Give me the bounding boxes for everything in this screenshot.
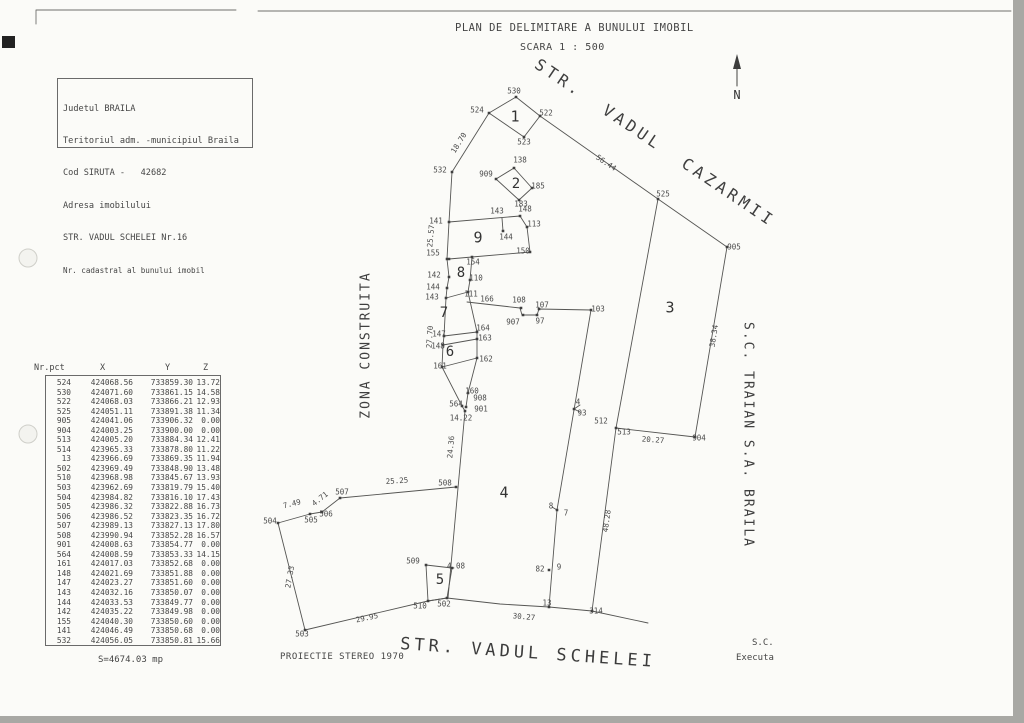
point-label: 908 [473, 394, 487, 402]
parcel-number: 8 [457, 266, 465, 280]
table-row: 532424056.05733850.8115.66 [46, 636, 220, 646]
area-label: S=4674.03 mp [98, 655, 163, 665]
point-label: 111 [464, 290, 478, 298]
point-label: 82 [535, 565, 544, 573]
point-label: 314 [589, 607, 603, 615]
col-header-z: Z [203, 363, 208, 373]
executa-label: Executa [736, 653, 774, 663]
point-label: 503 [295, 630, 309, 638]
table-cell: 733869.35 [133, 454, 193, 464]
table-cell: 532 [46, 636, 71, 646]
table-cell: 424035.22 [71, 607, 133, 617]
scan-mark [2, 36, 15, 48]
property-info-box: Judetul BRAILA Teritoriul adm. -municipi… [57, 78, 253, 148]
point-label: 509 [406, 557, 420, 565]
table-cell: 0.00 [193, 540, 220, 550]
table-cell: 733827.13 [133, 521, 193, 531]
table-row: 144424033.53733849.770.00 [46, 598, 220, 608]
table-row: 530424071.60733861.1514.58 [46, 388, 220, 398]
table-cell: 423968.98 [71, 473, 133, 483]
point-label: 148 [431, 342, 445, 350]
table-row: 148424021.69733851.880.00 [46, 569, 220, 579]
info-siruta: Cod SIRUTA - 42682 [63, 168, 252, 179]
table-cell: 905 [46, 416, 71, 426]
table-cell: 142 [46, 607, 71, 617]
table-row: 505423986.32733822.8816.73 [46, 502, 220, 512]
table-cell: 424051.11 [71, 407, 133, 417]
info-address-label: Adresa imobilului [63, 201, 252, 212]
table-cell: 424046.49 [71, 626, 133, 636]
table-cell: 16.57 [193, 531, 220, 541]
table-row: 901424008.63733854.770.00 [46, 540, 220, 550]
info-street: STR. VADUL SCHELEI Nr.16 [63, 233, 252, 244]
parcel-number: 7 [440, 306, 448, 320]
table-cell: 733884.34 [133, 435, 193, 445]
col-header-x: X [100, 363, 105, 373]
table-row: 514423965.33733878.8011.22 [46, 445, 220, 455]
point-label: 164 [476, 324, 490, 332]
info-territory: Teritoriul adm. -municipiul Braila [63, 136, 252, 147]
point-label: 14.22 [450, 414, 473, 422]
table-cell: 155 [46, 617, 71, 627]
point-label: 144 [426, 283, 440, 291]
point-label: 24.36 [446, 435, 455, 458]
table-cell: 733891.38 [133, 407, 193, 417]
table-cell: 530 [46, 388, 71, 398]
table-cell: 502 [46, 464, 71, 474]
point-label: 512 [594, 417, 608, 425]
point-label: 530 [507, 87, 521, 95]
table-cell: 733850.07 [133, 588, 193, 598]
table-cell: 0.00 [193, 588, 220, 598]
table-cell: 424021.69 [71, 569, 133, 579]
table-cell: 733822.88 [133, 502, 193, 512]
table-row: 155424040.30733850.600.00 [46, 617, 220, 627]
table-cell: 733852.68 [133, 559, 193, 569]
point-label: 532 [433, 166, 447, 174]
table-row: 506423986.52733823.3516.72 [46, 512, 220, 522]
table-cell: 424023.27 [71, 578, 133, 588]
parcel-number: 5 [436, 573, 444, 587]
table-cell: 733849.77 [133, 598, 193, 608]
table-row: 524424068.56733859.3013.72 [46, 378, 220, 388]
table-cell: 423986.52 [71, 512, 133, 522]
table-cell: 0.00 [193, 617, 220, 627]
point-label: 141 [429, 217, 443, 225]
table-cell: 424017.03 [71, 559, 133, 569]
point-label: 907 [506, 318, 520, 326]
point-label: 9 [557, 563, 562, 571]
parcel-number: 4 [499, 486, 508, 501]
table-cell: 733823.35 [133, 512, 193, 522]
table-cell: 424068.56 [71, 378, 133, 388]
scale-label: SCARA 1 : 500 [520, 42, 605, 53]
table-cell: 524 [46, 378, 71, 388]
table-cell: 503 [46, 483, 71, 493]
point-label: 4.08 [447, 562, 465, 570]
table-cell: 17.43 [193, 493, 220, 503]
table-cell: 424005.20 [71, 435, 133, 445]
point-label: 524 [470, 106, 484, 114]
point-label: 7 [564, 509, 569, 517]
projection-label: PROIECTIE STEREO 1970 [280, 652, 404, 662]
table-cell: 0.00 [193, 626, 220, 636]
point-label: 901 [474, 405, 488, 413]
point-label: 505 [304, 516, 318, 524]
point-label: 155 [426, 249, 440, 257]
point-label: 108 [512, 296, 526, 304]
table-cell: 17.80 [193, 521, 220, 531]
table-cell: 147 [46, 578, 71, 588]
table-cell: 148 [46, 569, 71, 579]
table-cell: 733859.30 [133, 378, 193, 388]
table-cell: 733850.81 [133, 636, 193, 646]
table-cell: 424003.25 [71, 426, 133, 436]
table-cell: 733845.67 [133, 473, 193, 483]
parcel-number: 9 [473, 231, 482, 246]
table-cell: 11.94 [193, 454, 220, 464]
point-label: 166 [480, 295, 494, 303]
table-cell: 733854.77 [133, 540, 193, 550]
point-label: 148 [518, 205, 532, 213]
point-label: 154 [466, 258, 480, 266]
point-label: 904 [692, 434, 706, 442]
table-cell: 733850.60 [133, 617, 193, 627]
point-label: 107 [535, 301, 549, 309]
point-label: 113 [527, 220, 541, 228]
table-cell: 13.72 [193, 378, 220, 388]
point-label: 143 [425, 293, 439, 301]
table-cell: 424071.60 [71, 388, 133, 398]
coordinate-table: 524424068.56733859.3013.72530424071.6073… [45, 375, 221, 646]
table-cell: 423965.33 [71, 445, 133, 455]
table-cell: 14.15 [193, 550, 220, 560]
point-label: 507 [335, 488, 349, 496]
point-label: 510 [413, 602, 427, 610]
page-title: PLAN DE DELIMITARE A BUNULUI IMOBIL [455, 22, 694, 34]
table-cell: 901 [46, 540, 71, 550]
table-cell: 733851.60 [133, 578, 193, 588]
point-label: 138 [513, 156, 527, 164]
point-label: 142 [427, 271, 441, 279]
table-cell: 0.00 [193, 569, 220, 579]
table-cell: 12.93 [193, 397, 220, 407]
col-header-y: Y [165, 363, 170, 373]
table-row: 525424051.11733891.3811.34 [46, 407, 220, 417]
table-cell: 424068.03 [71, 397, 133, 407]
point-label: 144 [499, 233, 513, 241]
table-cell: 424032.16 [71, 588, 133, 598]
table-row: 143424032.16733850.070.00 [46, 588, 220, 598]
table-cell: 144 [46, 598, 71, 608]
table-cell: 733861.15 [133, 388, 193, 398]
table-cell: 0.00 [193, 559, 220, 569]
table-cell: 161 [46, 559, 71, 569]
table-cell: 15.66 [193, 636, 220, 646]
point-label: 25.57 [426, 224, 435, 247]
table-cell: 733853.33 [133, 550, 193, 560]
point-label: 564 [449, 400, 463, 408]
table-cell: 0.00 [193, 578, 220, 588]
table-cell: 16.72 [193, 512, 220, 522]
col-header-nr: Nr.pct [34, 363, 65, 373]
street-label: S.C. TRAIAN S.A. BRAILA [742, 322, 755, 548]
point-label: 150 [516, 247, 530, 255]
table-row: 161424017.03733852.680.00 [46, 559, 220, 569]
table-cell: 733819.79 [133, 483, 193, 493]
table-cell: 424033.53 [71, 598, 133, 608]
table-cell: 510 [46, 473, 71, 483]
table-cell: 733851.88 [133, 569, 193, 579]
parcel-number: 3 [665, 301, 674, 316]
table-row: 522424068.03733866.2112.93 [46, 397, 220, 407]
table-cell: 424008.59 [71, 550, 133, 560]
table-row: 510423968.98733845.6713.93 [46, 473, 220, 483]
table-cell: 0.00 [193, 607, 220, 617]
point-label: 163 [478, 334, 492, 342]
table-row: 503423962.69733819.7915.40 [46, 483, 220, 493]
table-row: 147424023.27733851.600.00 [46, 578, 220, 588]
point-label: 506 [319, 510, 333, 518]
table-cell: 423966.69 [71, 454, 133, 464]
street-label: ZONA CONSTRUITA [360, 271, 373, 418]
table-cell: 423989.13 [71, 521, 133, 531]
point-label: 110 [469, 274, 483, 282]
table-row: 905424041.06733906.320.00 [46, 416, 220, 426]
info-county: Judetul BRAILA [63, 104, 252, 115]
table-cell: 12.41 [193, 435, 220, 445]
scanned-plan-page: PLAN DE DELIMITARE A BUNULUI IMOBIL SCAR… [0, 0, 1013, 716]
table-cell: 423990.94 [71, 531, 133, 541]
table-cell: 0.00 [193, 426, 220, 436]
table-cell: 733848.90 [133, 464, 193, 474]
table-cell: 423986.32 [71, 502, 133, 512]
point-label: 20.27 [641, 435, 664, 444]
table-cell: 11.34 [193, 407, 220, 417]
table-cell: 424041.06 [71, 416, 133, 426]
info-cadastral: Nr. cadastral al bunului imobil [63, 266, 252, 277]
point-label: 13 [542, 599, 551, 607]
table-row: 508423990.94733852.2816.57 [46, 531, 220, 541]
point-label: 103 [591, 305, 605, 313]
table-cell: 423962.69 [71, 483, 133, 493]
table-cell: 15.40 [193, 483, 220, 493]
table-row: 504423984.82733816.1017.43 [46, 493, 220, 503]
table-row: 502423969.49733848.9013.48 [46, 464, 220, 474]
point-label: 147 [432, 330, 446, 338]
table-cell: 14.58 [193, 388, 220, 398]
point-label: 504 [263, 517, 277, 525]
table-row: 507423989.13733827.1317.80 [46, 521, 220, 531]
point-label: 4 [576, 398, 581, 406]
punch-hole [19, 249, 37, 267]
point-label: 30.27 [512, 612, 535, 621]
table-row: 141424046.49733850.680.00 [46, 626, 220, 636]
point-label: 161 [433, 362, 447, 370]
north-arrow-icon [733, 54, 741, 69]
table-cell: 423984.82 [71, 493, 133, 503]
point-label: 523 [517, 138, 531, 146]
sc-label: S.C. [752, 638, 774, 648]
point-label: 93 [577, 409, 586, 417]
table-row: 564424008.59733853.3314.15 [46, 550, 220, 560]
table-cell: 733852.28 [133, 531, 193, 541]
parcel-number: 6 [446, 345, 454, 359]
table-cell: 11.22 [193, 445, 220, 455]
table-row: 513424005.20733884.3412.41 [46, 435, 220, 445]
table-cell: 508 [46, 531, 71, 541]
table-cell: 424040.30 [71, 617, 133, 627]
table-cell: 522 [46, 397, 71, 407]
table-cell: 423969.49 [71, 464, 133, 474]
table-cell: 505 [46, 502, 71, 512]
table-cell: 513 [46, 435, 71, 445]
point-label: 513 [617, 428, 631, 436]
table-cell: 733866.21 [133, 397, 193, 407]
table-cell: 504 [46, 493, 71, 503]
point-label: 25.25 [385, 476, 408, 485]
point-label: 905 [727, 243, 741, 251]
table-cell: 733850.68 [133, 626, 193, 636]
point-label: 8 [549, 502, 554, 510]
table-row: 142424035.22733849.980.00 [46, 607, 220, 617]
table-cell: 424008.63 [71, 540, 133, 550]
table-cell: 13.48 [193, 464, 220, 474]
punch-hole [19, 425, 37, 443]
table-cell: 13 [46, 454, 71, 464]
table-cell: 507 [46, 521, 71, 531]
table-cell: 13.93 [193, 473, 220, 483]
table-cell: 0.00 [193, 598, 220, 608]
point-label: 502 [437, 600, 451, 608]
point-label: 525 [656, 190, 670, 198]
point-label: 97 [535, 317, 544, 325]
table-row: 904424003.25733900.000.00 [46, 426, 220, 436]
table-cell: 733906.32 [133, 416, 193, 426]
table-cell: 733878.80 [133, 445, 193, 455]
point-label: 162 [479, 355, 493, 363]
table-cell: 733816.10 [133, 493, 193, 503]
table-cell: 904 [46, 426, 71, 436]
table-cell: 424056.05 [71, 636, 133, 646]
point-label: 909 [479, 170, 493, 178]
point-label: 508 [438, 479, 452, 487]
table-cell: 733849.98 [133, 607, 193, 617]
table-cell: 733900.00 [133, 426, 193, 436]
table-cell: 141 [46, 626, 71, 636]
table-cell: 525 [46, 407, 71, 417]
table-cell: 16.73 [193, 502, 220, 512]
table-cell: 514 [46, 445, 71, 455]
parcel-number: 2 [512, 177, 520, 191]
table-cell: 0.00 [193, 416, 220, 426]
north-label: N [733, 88, 740, 102]
table-cell: 143 [46, 588, 71, 598]
table-cell: 506 [46, 512, 71, 522]
parcel-number: 1 [510, 110, 519, 125]
table-cell: 564 [46, 550, 71, 560]
point-label: 185 [531, 182, 545, 190]
point-label: 522 [539, 109, 553, 117]
table-row: 13423966.69733869.3511.94 [46, 454, 220, 464]
point-label: 143 [490, 207, 504, 215]
